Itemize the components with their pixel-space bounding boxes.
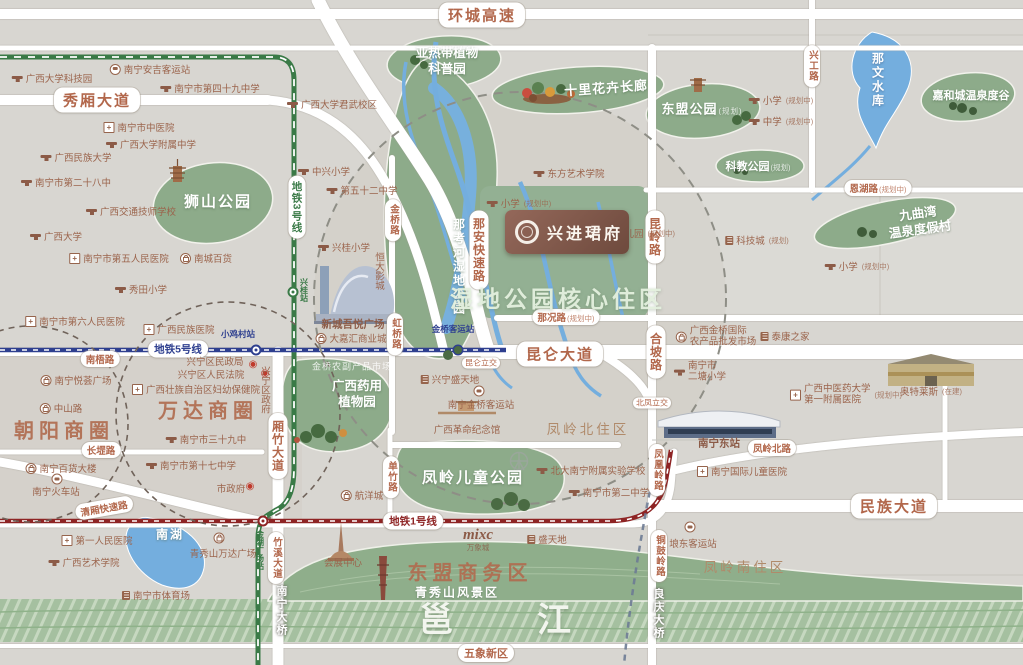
poi-guangxi-arts-college: 广西艺术学院 (48, 555, 119, 569)
xiaojicun-station-label: 小鸡村站 (221, 328, 255, 340)
poi-primary-planned-2: 小学(规划中) (825, 259, 890, 273)
xiuxiang-avenue-label: 秀厢大道 (54, 88, 140, 113)
kunlun-avenue-label: 昆仑大道 (517, 342, 603, 367)
enhu-road-label: 恩湖路(规划中) (844, 180, 911, 196)
poi-nancheng-store: 南城百货 (180, 251, 232, 265)
school-icon (166, 434, 177, 444)
poi-xingning-court: 兴宁区人民法院 (178, 367, 245, 381)
poi-convention-center: 会展中心 (324, 555, 362, 569)
poi-no5-hospital: 南宁市第五人民医院 (69, 251, 169, 265)
school-icon (21, 177, 32, 187)
wuxiang-district-label: 五象新区 (458, 644, 514, 662)
shop-icon (40, 403, 51, 414)
naan-expressway-label: 那安快速路 (470, 211, 489, 290)
shop-icon (676, 332, 687, 343)
bus-icon (474, 386, 485, 397)
hosp-icon (69, 253, 80, 264)
yongjiang-char-2: 江 (537, 593, 571, 642)
school-icon (674, 367, 685, 377)
poi-no2-middle-school: 南宁市第二中学 (569, 485, 650, 499)
shop-icon (214, 533, 225, 544)
nanhu-lake-label: 南湖 (156, 526, 184, 543)
poi-xingning-government: 兴宁区政府 (257, 366, 271, 414)
poi-tcm-first-affiliated-hospital: 广西中医药大学 第一附属医院(规划中) (790, 384, 902, 407)
poi-tcm-hospital: 南宁市中医院 (103, 120, 174, 134)
shop-icon (25, 463, 36, 474)
poi-first-people-hospital: 第一人民医院 (61, 533, 132, 547)
build-icon (527, 535, 535, 544)
poi-yuehui-plaza: 南宁悦荟广场 (40, 373, 111, 387)
project-name: 兴进珺府 (547, 220, 623, 244)
poi-gxu-affiliated-school: 广西大学附属中学 (106, 137, 196, 151)
nawen-reservoir-label: 那文水库 (870, 52, 887, 108)
tonguling-road-label: 铜鼓岭路 (651, 530, 667, 582)
school-icon (146, 460, 157, 470)
chaoyang-circle-label: 朝阳商圈 (14, 415, 114, 444)
poi-xingning-civil-affairs: 兴宁区民政局 (186, 354, 243, 368)
hosp-icon (143, 324, 154, 335)
poi-city-government: 市政府 (217, 481, 246, 495)
poi-dongfang-art-college: 东方艺术学院 (533, 166, 604, 180)
poi-no52-middle-school: 第五十二中学 (326, 183, 397, 197)
school-icon (825, 261, 836, 271)
asean-business-district-label: 东盟商务区 (408, 557, 533, 586)
jinqiao-station-label: 金桥客运站 (432, 323, 475, 335)
shop-icon (180, 253, 191, 264)
school-icon (487, 198, 498, 208)
poi-xinggui-primary: 兴桂小学 (318, 240, 370, 254)
bus-icon (685, 522, 696, 533)
poi-ertang-primary: 南宁市 二塘小学 (674, 361, 726, 384)
build-icon (760, 332, 768, 341)
poi-xiutian-primary: 秀田小学 (115, 282, 167, 296)
hepo-road-label: 合坡路 (647, 326, 666, 379)
poi-no28-middle-school: 南宁市第二十八中 (21, 175, 111, 189)
poi-hangyang-city: 航洋城 (341, 488, 384, 502)
poi-mixc: mixc万象城 (463, 528, 493, 552)
shop-icon (40, 375, 51, 386)
poi-nanning-stadium: 南宁市体育场 (122, 588, 190, 602)
map-canvas: 环城高速秀厢大道地铁3号线地铁5号线南梧路昆仑大道那况路(规划中)恩湖路(规划中… (0, 0, 1023, 665)
poi-taikang-home: 泰康之家 (760, 329, 809, 343)
shishan-park-label: 狮山公园 (184, 191, 252, 212)
poi-jiaotong-school: 广西交通技师学校 (86, 204, 176, 218)
bus-icon (52, 474, 63, 485)
poi-outlets: 奥特莱斯(在建) (900, 384, 962, 398)
jiahecheng-springs-label: 嘉和城温泉度谷 (933, 87, 1010, 103)
poi-qingxiushan-wanda: 青秀山万达广场 (190, 546, 257, 560)
poi-wuyue-plaza: 新城吾悦广场 (322, 317, 385, 332)
jinqiao-road-label: 金桥路 (385, 199, 401, 241)
beifeng-interchange-label: 北凤立交 (633, 398, 671, 409)
school-icon (30, 231, 41, 241)
hosp-icon (25, 316, 36, 327)
xiangzhu-avenue-label: 厢竹大道 (269, 413, 288, 479)
xinggong-road-label: 兴工路 (804, 45, 820, 87)
xinggui-station-label: 兴桂站 (299, 278, 310, 302)
nanning-bridge-label: 南宁大桥 (273, 585, 289, 637)
poi-tech-city: 科技城(规划) (725, 233, 789, 247)
jiuquwan-resort-label: 九曲湾 温泉度假村 (886, 202, 952, 243)
school-icon (40, 152, 51, 162)
school-icon (106, 139, 117, 149)
poi-xingning-shengtiandi: 兴宁盛天地 (421, 372, 480, 386)
poi-no39-middle-school: 南宁市三十九中 (166, 432, 247, 446)
school-icon (533, 168, 544, 178)
poi-jinqiao-farm-market: 金桥农副产品市场 (312, 360, 392, 373)
hosp-icon (61, 535, 72, 546)
poi-minzu-hospital: 广西民族医院 (143, 322, 214, 336)
fengling-children-park-label: 凤岭儿童公园 (422, 467, 524, 488)
danzhu-road-label: 单竹路 (383, 456, 399, 498)
school-icon (86, 206, 97, 216)
build-icon (122, 591, 130, 600)
poi-nanning-east-station: 南宁东站 (698, 436, 740, 451)
poi-gxu-junwu-campus: 广西大学君武校区 (287, 97, 377, 111)
fengling-south-zone-label: 凤岭南住区 (704, 556, 787, 576)
school-icon (115, 284, 126, 294)
qingxiushan-wanda-icon (214, 533, 225, 544)
bus-icon (110, 64, 121, 75)
jinhu-square-station-label: 金湖广场站 (255, 530, 266, 570)
poi-jinqiao-wholesale-market: 广西金桥国际 农产品批发市场 (676, 326, 757, 349)
subtropical-garden-label: 亚热带植物 科普园 (416, 45, 479, 78)
poi-shengtiandi: 盛天地 (527, 532, 567, 546)
poi-nanning-railway-station: 南宁火车站 (32, 484, 80, 498)
poi-langdong-bus-station: 埌东客运站 (669, 536, 717, 550)
poi-minzu-university: 广西民族大学 (40, 150, 111, 164)
project-logo-icon (515, 220, 539, 244)
project-plaque: 兴进珺府 (505, 210, 629, 254)
target-icon-3: ◉ (246, 482, 255, 492)
map-labels-layer: 环城高速秀厢大道地铁3号线地铁5号线南梧路昆仑大道那况路(规划中)恩湖路(规划中… (0, 0, 1023, 665)
school-icon (287, 99, 298, 109)
poi-intl-children-hospital: 南宁国际儿童医院 (697, 464, 787, 478)
fengling-north-road-label: 凤岭北路 (748, 440, 796, 456)
poi-zhongxing-primary: 中兴小学 (298, 164, 350, 178)
zhuxi-avenue-label: 竹溪大道 (268, 532, 284, 584)
shop-icon (341, 490, 352, 501)
wanda-circle-label: 万达商圈 (158, 395, 258, 424)
liangqing-bridge-label: 良庆大桥 (650, 588, 666, 640)
kunlun-interchange-label: 昆仑立交 (462, 358, 500, 369)
school-icon (298, 166, 309, 176)
poi-jinqiao-bus-station: 南宁金桥客运站 (448, 397, 515, 411)
metro-line3-label: 地铁3号线 (289, 176, 306, 239)
school-icon (326, 185, 337, 195)
poi-middle-planned: 中学(规划中) (749, 114, 814, 128)
huancheng-expressway-label: 环城高速 (439, 3, 525, 28)
changgang-road-label: 长堽路 (82, 442, 121, 458)
hosp-icon (790, 390, 801, 401)
school-icon (12, 73, 23, 83)
school-icon (318, 242, 329, 252)
hosp-icon (132, 384, 143, 395)
poi-pku-experimental-school: 北大南宁附属实验学校 (536, 463, 645, 477)
hosp-icon (103, 122, 114, 133)
wetland-core-zone-label: 湿地公园核心住区 (450, 280, 666, 314)
poi-maternal-health-hospital: 广西壮族自治区妇幼保健院 (132, 382, 260, 396)
poi-gxu-science-park: 广西大学科技园 (12, 71, 93, 85)
target-icon: ◉ (246, 482, 255, 492)
fengling-north-zone-label: 凤岭北住区 (547, 418, 630, 438)
fenghuangling-road-label: 凤凰岭路 (649, 444, 665, 496)
nanwu-road-label: 南梧路 (81, 351, 120, 367)
railway-station-icon (52, 474, 63, 485)
school-icon (749, 95, 760, 105)
poi-zhongshan-road: 中山路 (40, 401, 83, 415)
metro-line1-label: 地铁1号线 (383, 513, 443, 530)
poi-guangxi-university: 广西大学 (30, 229, 82, 243)
build-icon (725, 236, 733, 245)
langdong-bus-icon (685, 522, 696, 533)
school-icon (536, 465, 547, 475)
kejiao-park-label: 科教公园(规划) (726, 158, 791, 174)
poi-primary-planned-3: 小学(规划中) (749, 93, 814, 107)
poi-revolution-memorial: 广西革命纪念馆 (434, 422, 501, 436)
asean-park-label: 东盟公园(规划) (661, 99, 742, 118)
poi-anji-bus-station: 南宁安吉客运站 (110, 62, 191, 76)
qingxiang-expressway-label: 清厢快速路 (74, 495, 133, 521)
poi-no17-middle-school: 南宁市第十七中学 (146, 458, 236, 472)
build-icon (421, 375, 429, 384)
school-icon (160, 83, 171, 93)
jinqiao-bus-icon (474, 386, 485, 397)
poi-hengda-cinema: 恒大影城 (371, 252, 385, 290)
school-icon (749, 116, 760, 126)
shop-icon (315, 333, 326, 344)
school-icon (569, 487, 580, 497)
minzu-avenue-label: 民族大道 (851, 494, 937, 519)
poi-no49-middle-school: 南宁市第四十九中学 (160, 81, 260, 95)
poi-no6-hospital: 南宁市第六人民医院 (25, 314, 125, 328)
yongjiang-char-1: 邕 (419, 593, 453, 642)
poi-primary-planned-1: 小学(规划中) (487, 196, 552, 210)
poi-dajiahui-mall: 大嘉汇商业城 (315, 331, 386, 345)
hongqiao-road-label: 虹桥路 (387, 313, 403, 355)
hosp-icon (697, 466, 708, 477)
school-icon (48, 557, 59, 567)
medicinal-garden-label: 广西药用 植物园 (332, 378, 382, 411)
flower-corridor-label: 十里花卉长廊 (563, 75, 648, 100)
